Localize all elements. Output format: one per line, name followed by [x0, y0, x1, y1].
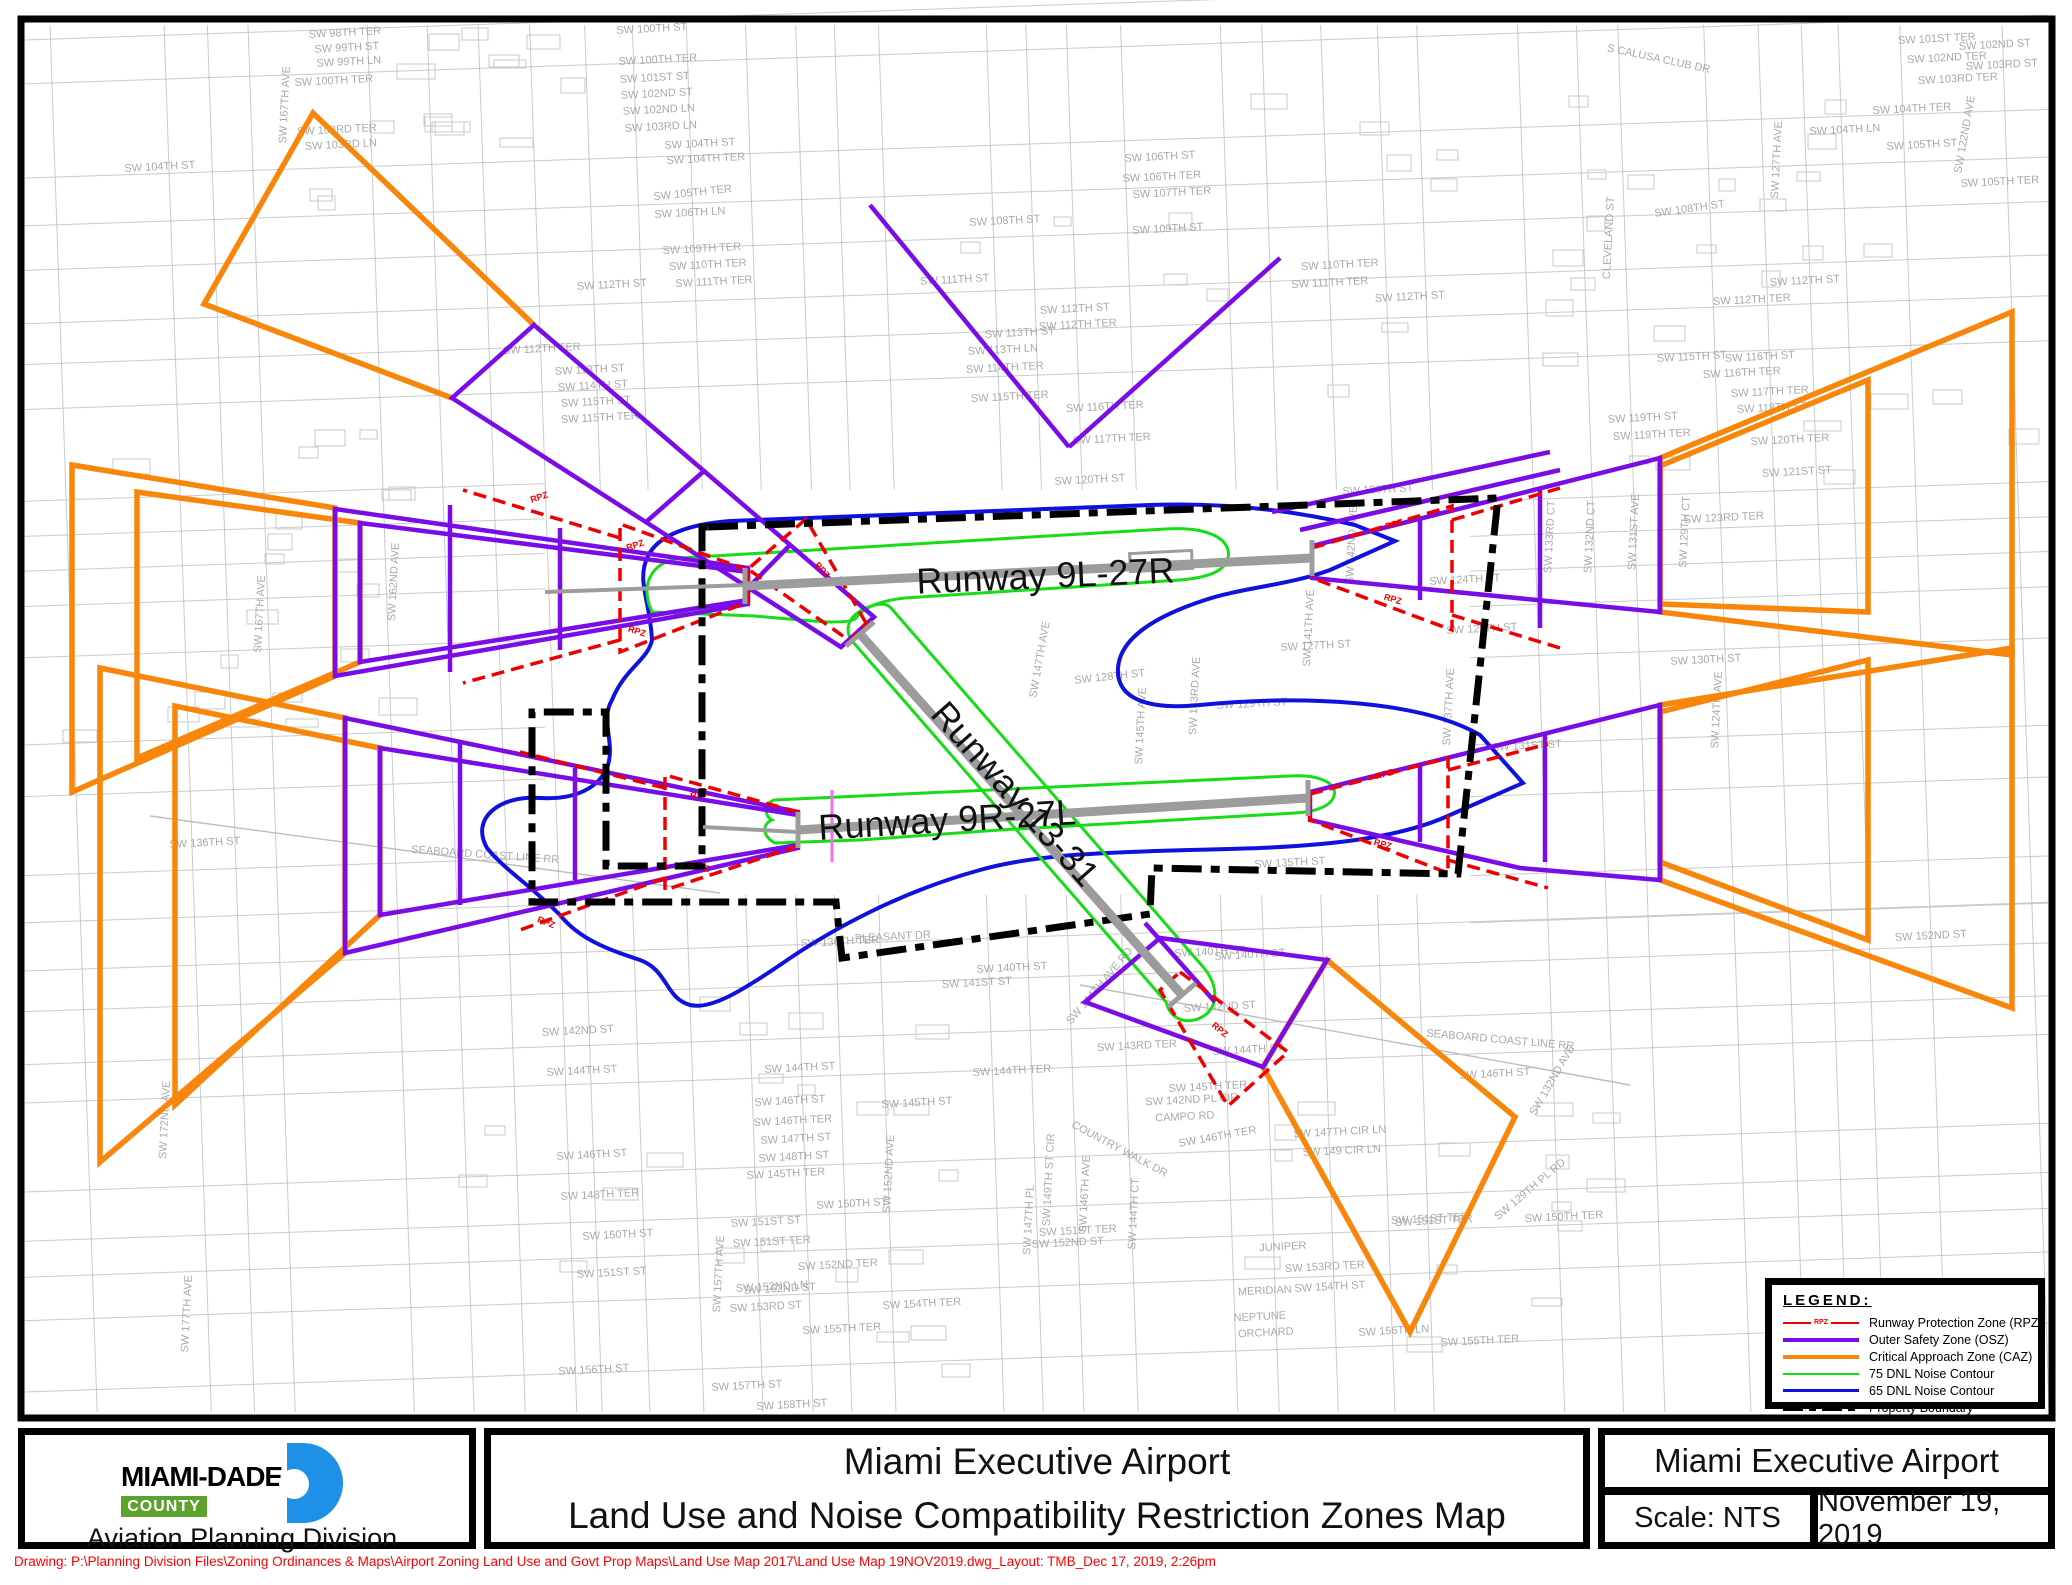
street-label: SW 98TH TER [308, 25, 381, 41]
street-label: SW 110TH TER [1301, 257, 1379, 273]
street-grid [25, 0, 2049, 1412]
logo-d-icon [287, 1443, 343, 1523]
street-label: NEPTUNE [1233, 1310, 1286, 1325]
map-canvas: SW 98TH TERSW 99TH STSW 99TH LNSW 100TH … [0, 0, 2072, 1585]
rpz-tag-label: RPZ [529, 489, 550, 504]
street-label: SW 137TH AVE [1441, 668, 1457, 746]
street-label: MERIDIAN [1238, 1284, 1292, 1299]
logo-name: MIAMI-DADE [121, 1461, 282, 1493]
info-date: November 19, 2019 [1818, 1495, 2048, 1542]
map-title-line1: Miami Executive Airport [844, 1435, 1231, 1489]
street-label: SW 141TH AVE [1301, 589, 1317, 667]
street-label: SW 155TH TER [802, 1321, 881, 1337]
street-label: SW 104TH TER [666, 151, 745, 167]
street-label: SW 112TH ST [1770, 273, 1841, 289]
street-label: SW 132ND CT [1582, 500, 1598, 574]
street-label: SW 106TH LN [654, 205, 725, 221]
street-label: SW 123RD TER [1684, 510, 1764, 526]
street-label: SW 167TH AVE [277, 66, 293, 144]
legend-row-rpz: RPZ Runway Protection Zone (RPZ) [1783, 1314, 2029, 1331]
street-label: SW 108TH ST [969, 213, 1041, 229]
street-label: SW 141ST ST [942, 975, 1013, 991]
street-label: SEABOARD COAST LINE RR [1426, 1028, 1575, 1053]
street-label: SW 156TH ST [558, 1362, 630, 1378]
street-label: SW 102ND ST [621, 86, 694, 102]
street-label: SW 103RD TER [1918, 71, 1998, 87]
street-label: SW 148TH ST [758, 1149, 830, 1165]
street-label: SW 110TH TER [669, 257, 747, 273]
legend: LEGEND: RPZ Runway Protection Zone (RPZ)… [1765, 1278, 2045, 1409]
rpz-line-sample: RPZ [1783, 1319, 1859, 1326]
street-label: SW 115TH TER [561, 410, 639, 426]
street-label: SW 100TH TER [294, 73, 373, 89]
street-label: SW 150TH ST [582, 1227, 654, 1243]
street-label: SW 147TH ST [760, 1131, 832, 1147]
street-label: SW 116TH TER [1703, 365, 1781, 381]
street-label: SW 119TH ST [1608, 410, 1679, 426]
legend-row-osz: Outer Safety Zone (OSZ) [1783, 1331, 2029, 1348]
street-label: SW 154TH ST [1294, 1279, 1366, 1295]
street-label: SW 129TH CT [1677, 496, 1693, 568]
street-label: SW 146TH ST [754, 1093, 826, 1109]
street-label: SW 153RD ST [730, 1299, 803, 1315]
street-label: SW 148TH TER [560, 1187, 639, 1203]
street-label: SW 158TH ST [756, 1397, 828, 1413]
info-block: Miami Executive Airport Scale: NTS Novem… [1598, 1428, 2055, 1549]
street-label: SW 154TH TER [882, 1296, 961, 1312]
miami-dade-logo: MIAMI-DADE COUNTY [121, 1461, 282, 1517]
legend-row-caz: Critical Approach Zone (CAZ) [1783, 1348, 2029, 1365]
street-label: SW 121ST ST [1762, 464, 1833, 480]
street-label: SW 152ND ST [1895, 928, 1968, 944]
street-label: SW 150TH TER [1524, 1209, 1603, 1225]
street-label: SW 149TH ST CIR [1041, 1133, 1058, 1226]
street-label: SW 127TH ST [1280, 638, 1352, 654]
rpz-tag-label: RPZ [627, 624, 648, 639]
street-label: SW 152ND ST [1032, 1235, 1105, 1251]
main-title-block: Miami Executive Airport Land Use and Noi… [484, 1428, 1590, 1549]
street-label: SW 143RD AVE [1187, 656, 1203, 735]
street-label: SW 109TH TER [662, 241, 741, 257]
street-label: SW 147TH AVE [1027, 620, 1052, 698]
street-label: SW 143RD TER [1097, 1038, 1177, 1054]
street-label: SW 112TH ST [577, 277, 648, 293]
rpz-tag-label: RPZ [536, 914, 557, 930]
street-label: SW 119TH TER [1613, 427, 1691, 443]
street-label: SW 111TH TER [1291, 275, 1369, 291]
street-label: SW 133RD CT [1542, 500, 1558, 574]
street-label: SW 103RD LN [625, 119, 698, 135]
street-label: SW 152ND TER [798, 1257, 878, 1273]
legend-row-65dnl: 65 DNL Noise Contour [1783, 1382, 2029, 1399]
street-label: SW 101ST ST [620, 70, 691, 86]
street-label: SW 145TH ST [881, 1095, 953, 1111]
street-label: CAMPO RD [1155, 1109, 1215, 1124]
street-label: ORCHARD [1238, 1326, 1294, 1341]
map-title-line2: Land Use and Noise Compatibility Restric… [568, 1489, 1506, 1543]
street-label: SW 120TH TER [1750, 432, 1829, 448]
street-label: SW 151ST ST [577, 1265, 648, 1281]
rpz-tag-label: RPZ [1384, 517, 1405, 532]
street-label: SW 150TH ST [816, 1196, 888, 1212]
street-label: SW 108TH ST [1654, 198, 1726, 220]
street-label: SW 131ST AVE [1626, 493, 1642, 570]
street-label: SW 128TH ST [1074, 667, 1146, 686]
street-label: SW 146TH TER [1178, 1124, 1258, 1149]
runway-labels: Runway 9L-27RRunway 13-31Runway 9R-27L [817, 549, 1175, 894]
street-label: SW 104TH LN [1809, 122, 1880, 138]
street-label: SW 146TH TER [753, 1113, 832, 1129]
legend-title: LEGEND: [1783, 1292, 2029, 1309]
rpz-tag-label: RPZ [1210, 1020, 1231, 1040]
street-label: SW 162ND AVE [386, 542, 402, 621]
street-label: SW 130TH ST [1670, 652, 1742, 668]
street-label: SW 114TH ST [558, 378, 629, 394]
street-label: CLEVELAND ST [1601, 196, 1617, 279]
street-label: SW 124TH AVE [1709, 671, 1725, 749]
street-label: SW 144TH ST [546, 1063, 618, 1079]
street-label: SW 102ND LN [623, 102, 696, 118]
street-label: SW 152ND AVE [881, 1134, 897, 1213]
street-label: SW 104TH TER [1872, 101, 1951, 117]
street-label: SW 146TH ST [556, 1147, 628, 1163]
street-label: PLEASANT DR [854, 929, 931, 945]
street-label: SW 120TH ST [1054, 472, 1126, 488]
street-label: SW 115TH ST [1657, 349, 1728, 365]
street-label: SW 147TH CIR LN [1293, 1124, 1386, 1141]
street-label: SW 115TH TER [971, 389, 1049, 405]
street-label: SW 100TH TER [618, 52, 697, 68]
street-label: SW 157TH ST [711, 1378, 783, 1394]
street-label: SW 100TH ST [616, 21, 688, 37]
street-label: SW 116TH ST [1725, 349, 1796, 365]
agency-division: Aviation Planning Division [87, 1523, 397, 1554]
street-label: SW 157TH AVE [711, 1235, 727, 1313]
street-label: SW 151ST ST [731, 1214, 802, 1230]
street-label: SW 117TH TER [1731, 384, 1809, 400]
street-labels: SW 98TH TERSW 99TH STSW 99TH LNSW 100TH … [124, 21, 2039, 1413]
street-label: SW 145TH TER [746, 1166, 825, 1182]
street-label: SW 99TH ST [314, 40, 380, 55]
info-scale: Scale: NTS [1605, 1495, 1818, 1542]
street-label: SW 111TH TER [675, 274, 753, 290]
drawing-path-note: Drawing: P:\Planning Division Files\Zoni… [14, 1554, 1216, 1569]
street-label: SW 113TH ST [985, 325, 1056, 341]
street-label: SW 144TH TER [972, 1063, 1051, 1079]
street-label: SW 151ST TER [733, 1234, 811, 1250]
street-label: SW 99TH LN [316, 54, 381, 69]
rpz-tag-label: RPZ [1374, 767, 1394, 781]
street-label: SW 109TH ST [1132, 221, 1204, 237]
street-label: SW 172ND AVE [157, 1080, 173, 1159]
map-sheet: SW 98TH TERSW 99TH STSW 99TH LNSW 100TH … [0, 0, 2072, 1585]
agency-block: MIAMI-DADE COUNTY Aviation Planning Divi… [18, 1428, 476, 1549]
legend-row-boundary: Property Boundary [1783, 1399, 2029, 1416]
logo-county-badge: COUNTY [121, 1496, 207, 1517]
street-label: SW 156TH LN [1358, 1323, 1429, 1339]
legend-row-75dnl: 75 DNL Noise Contour [1783, 1365, 2029, 1382]
street-label: SW 112TH ST [1040, 301, 1111, 317]
street-label: SW 142ND ST [542, 1023, 615, 1039]
street-label: SW 112TH TER [1713, 292, 1791, 308]
street-label: SW 104TH ST [664, 136, 736, 152]
street-label: SW 155TH TER [1440, 1333, 1519, 1349]
street-label: SW 144TH ST [764, 1060, 836, 1076]
street-label: JUNIPER [1259, 1240, 1307, 1254]
street-label: SW 105TH ST [1886, 137, 1958, 153]
street-label: SW 146TH AVE [1077, 1155, 1093, 1233]
street-label: SW 127TH AVE [1769, 121, 1785, 199]
street-label: SW 167TH AVE [252, 575, 268, 653]
street-label: SW 136TH ST [169, 835, 241, 851]
street-label: SW 105TH TER [1960, 174, 2039, 190]
street-label: SW 122ND AVE [1952, 95, 1977, 175]
street-label: SW 177TH AVE [179, 1275, 195, 1353]
street-label: SW 113TH LN [968, 342, 1039, 358]
street-label: SW 112TH ST [1375, 289, 1446, 305]
street-label: SW 103RD ST [1966, 57, 2039, 73]
street-label: SW 140TH ST [976, 960, 1048, 976]
street-label: SW 106TH ST [1124, 149, 1196, 165]
street-label: SW 106TH TER [1122, 169, 1201, 185]
street-label: SW 153RD TER [1285, 1259, 1365, 1275]
street-label: S CALUSA CLUB DR [1606, 42, 1711, 76]
runway-label-9L-27R: Runway 9L-27R [916, 549, 1176, 601]
